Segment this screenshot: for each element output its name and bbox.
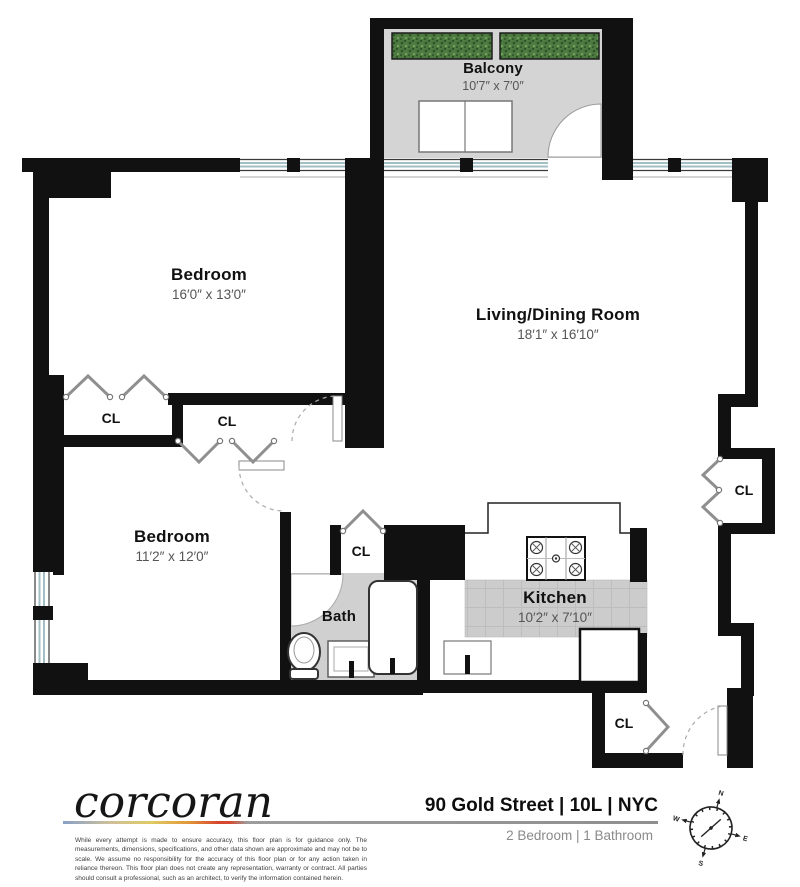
floor-plan-canvas: Balcony 10′7″ x 7′0″ Bedroom 16′0″ x 13′…: [0, 0, 800, 887]
closet-label: CL: [102, 410, 121, 426]
room-label-bath: Bath: [322, 608, 356, 625]
room-name: Balcony: [462, 60, 524, 77]
entry-door-leaf: [718, 706, 727, 755]
room-dims: 18′1″ x 16′10″: [476, 327, 640, 342]
compass-south-label: S: [697, 860, 704, 868]
door-leaf: [333, 396, 342, 441]
room-name: Bedroom: [171, 265, 247, 285]
closet-label: CL: [615, 715, 634, 731]
compass-east-label: E: [742, 835, 749, 843]
bath-sink: [328, 641, 374, 678]
room-name: Bedroom: [134, 527, 210, 547]
listing-summary: 2 Bedroom | 1 Bathroom: [506, 828, 653, 843]
disclaimer-text: While every attempt is made to ensure ac…: [75, 836, 367, 883]
room-label-bedroom-top: Bedroom 16′0″ x 13′0″: [171, 265, 247, 302]
stove: [527, 537, 585, 580]
room-label-kitchen: Kitchen 10′2″ x 7′10″: [518, 588, 592, 625]
kitchen-alcove: [465, 503, 630, 533]
window-mullion: [287, 158, 300, 172]
brand-rule: [63, 821, 658, 824]
window-mullion: [460, 158, 473, 172]
closet-label: CL: [218, 413, 237, 429]
compass-north-label: N: [717, 790, 724, 798]
room-name: Living/Dining Room: [476, 305, 640, 325]
kitchen-sink-counter: [444, 641, 491, 674]
compass-west-label: W: [672, 815, 681, 824]
listing-address: 90 Gold Street | 10L | NYC: [425, 795, 658, 817]
room-dims: 10′2″ x 7′10″: [518, 610, 592, 625]
room-dims: 10′7″ x 7′0″: [462, 79, 524, 93]
floor-plan-drawing: [0, 0, 800, 782]
closet-label: CL: [735, 482, 754, 498]
room-label-bedroom-bottom: Bedroom 11′2″ x 12′0″: [134, 527, 210, 564]
room-name: Bath: [322, 608, 356, 625]
room-label-living-dining: Living/Dining Room 18′1″ x 16′10″: [476, 305, 640, 342]
window-mullion: [668, 158, 681, 172]
room-dims: 11′2″ x 12′0″: [134, 549, 210, 564]
closet-label: CL: [352, 543, 371, 559]
bathtub: [369, 581, 417, 674]
balcony-bench: [419, 101, 512, 152]
compass-icon: N E S W: [666, 786, 758, 874]
room-name: Kitchen: [518, 588, 592, 608]
corcoran-logo: corcoran: [74, 784, 273, 821]
room-label-balcony: Balcony 10′7″ x 7′0″: [462, 60, 524, 93]
toilet: [288, 633, 320, 679]
window-mullion: [33, 606, 53, 620]
door-leaf: [239, 461, 284, 470]
room-dims: 16′0″ x 13′0″: [171, 287, 247, 302]
refrigerator: [580, 629, 639, 682]
